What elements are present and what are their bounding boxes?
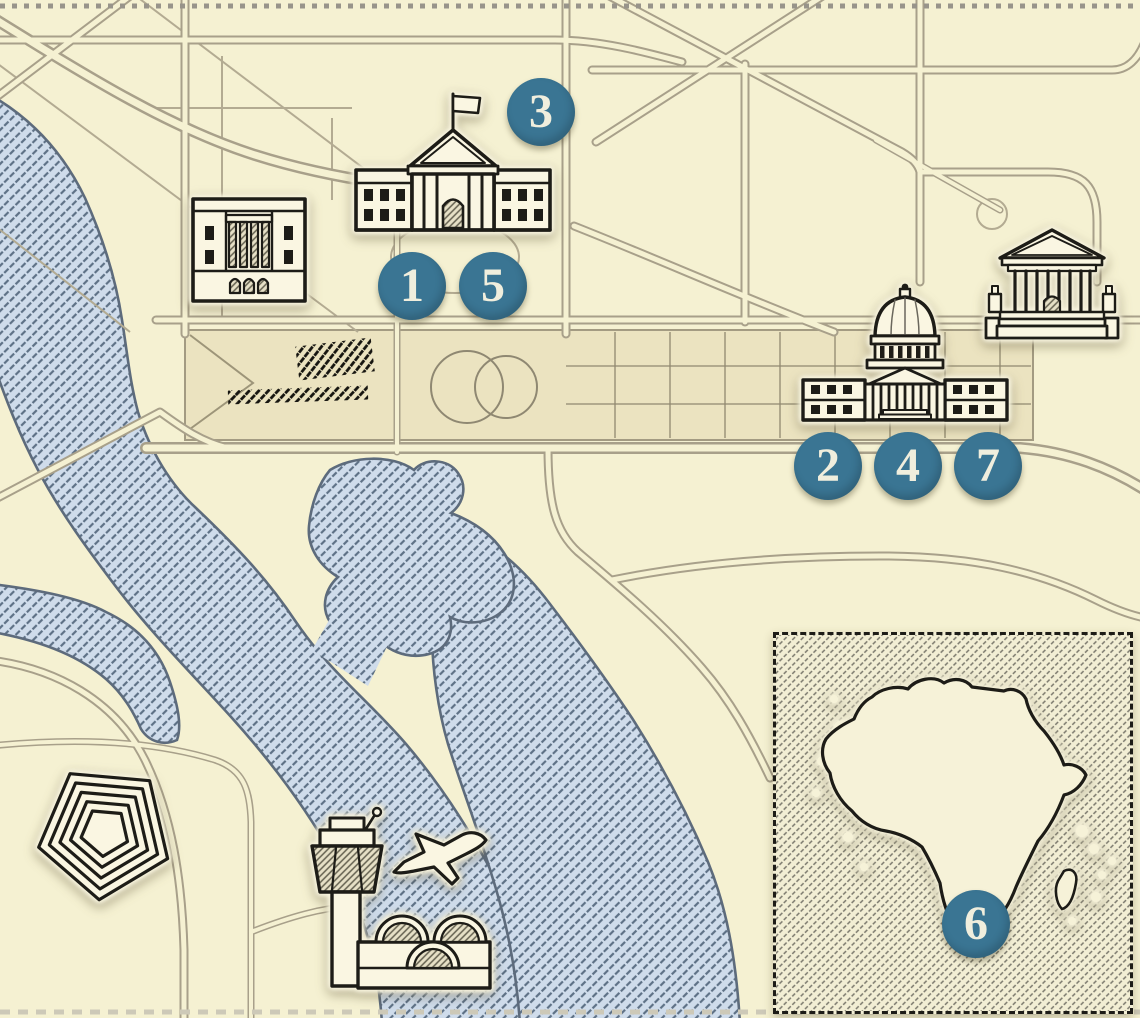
map-marker-5[interactable]: 5 — [459, 252, 527, 320]
flag-icon — [453, 96, 480, 113]
dc-illustrated-map: 1 2 3 4 5 6 7 — [0, 0, 1140, 1018]
map-marker-7[interactable]: 7 — [954, 432, 1022, 500]
africa-inset — [773, 632, 1133, 1014]
map-marker-1[interactable]: 1 — [378, 252, 446, 320]
map-marker-6[interactable]: 6 — [942, 890, 1010, 958]
pentagon-icon — [30, 760, 180, 910]
us-capitol-icon — [799, 280, 1011, 422]
map-marker-2[interactable]: 2 — [794, 432, 862, 500]
map-marker-3[interactable]: 3 — [507, 78, 575, 146]
africa-map-icon — [776, 635, 1130, 1011]
madagascar-icon — [1056, 870, 1076, 909]
supreme-court-icon — [982, 222, 1122, 340]
federal-building-icon — [188, 194, 310, 306]
map-marker-4[interactable]: 4 — [874, 432, 942, 500]
airplane-icon — [382, 822, 494, 892]
